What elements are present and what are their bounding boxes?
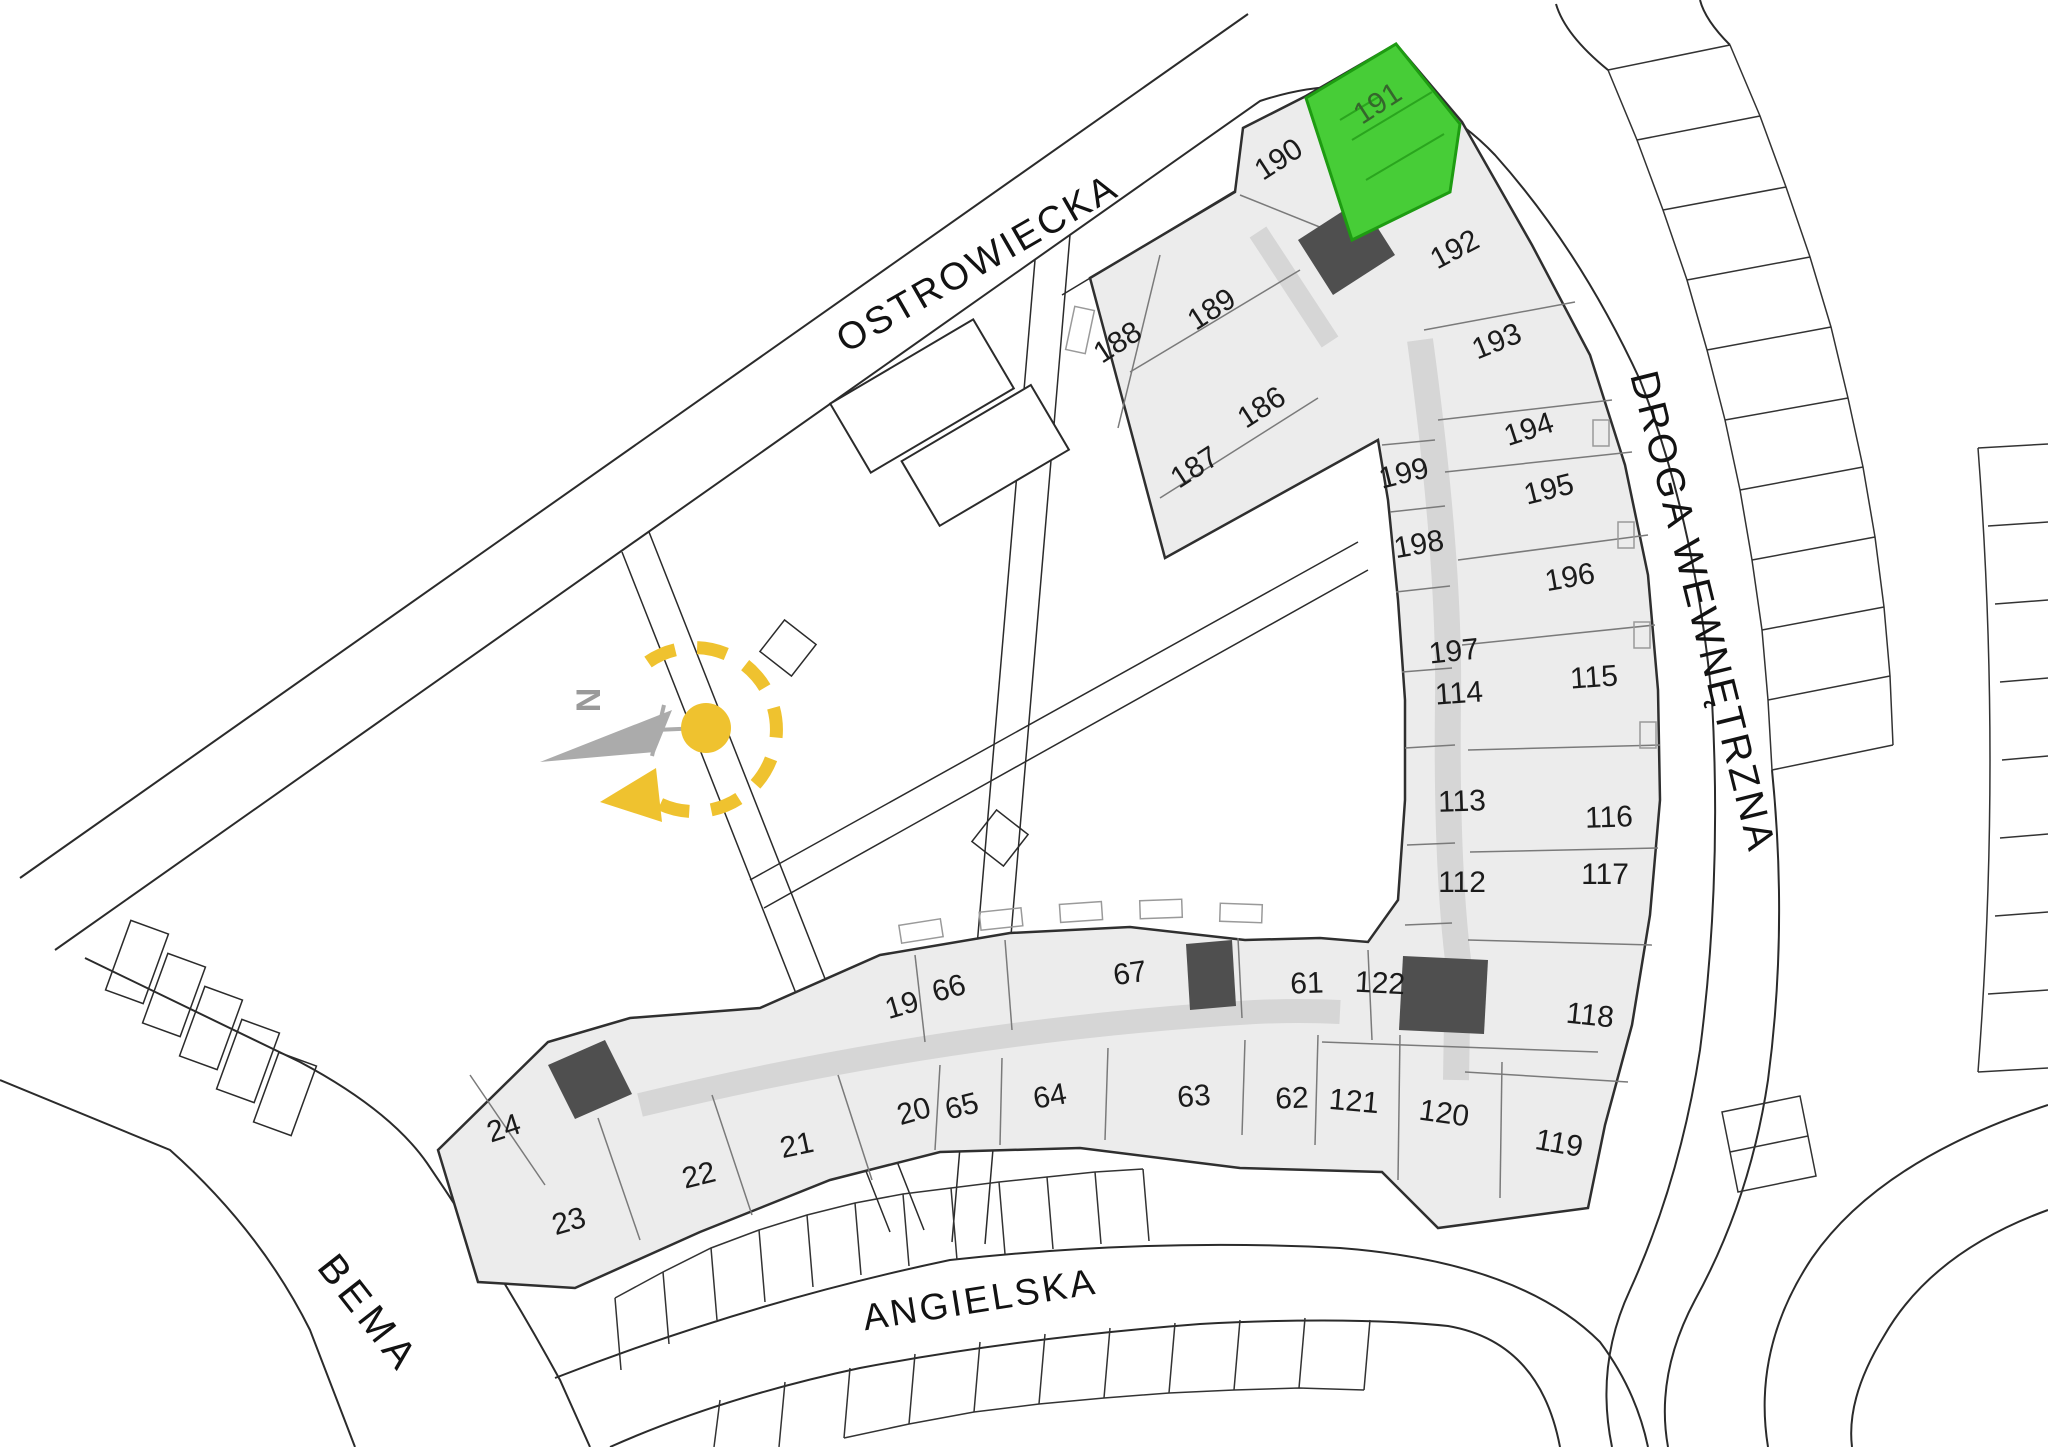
unit-label-116[interactable]: 116	[1585, 800, 1634, 836]
road-droga-cap2	[1700, 0, 1730, 45]
road-droga-outer-lower	[1665, 770, 1779, 1447]
unit-label-61[interactable]: 61	[1290, 966, 1325, 1001]
unit-label-121[interactable]: 121	[1328, 1083, 1381, 1121]
unit-label-120[interactable]: 120	[1417, 1094, 1471, 1135]
unit-label-197[interactable]: 197	[1427, 632, 1480, 671]
road-bema-sw	[0, 1080, 355, 1447]
north-label: N	[570, 688, 608, 713]
compass-dot	[681, 703, 731, 753]
unit-label-112[interactable]: 112	[1438, 866, 1486, 900]
unit-label-114[interactable]: 114	[1434, 675, 1484, 712]
unit-label-67[interactable]: 67	[1111, 955, 1149, 993]
compass-arrowhead-icon	[600, 768, 662, 822]
parking-angielska-south	[714, 1318, 1370, 1447]
unit-label-21[interactable]: 21	[777, 1126, 817, 1166]
road-angielska-lower	[610, 1320, 1560, 1447]
road-angielska-upper	[555, 1245, 1648, 1447]
unit-label-113[interactable]: 113	[1438, 784, 1487, 820]
unit-label-63[interactable]: 63	[1176, 1079, 1212, 1116]
compass: N	[540, 648, 776, 822]
road-bottom-right-outer	[1765, 1105, 2048, 1447]
site-plan: N OSTROWIECKADROGA WEWNĘTRZNAANGIELSKABE…	[0, 0, 2048, 1447]
bema-houses	[106, 920, 317, 1135]
unit-label-64[interactable]: 64	[1031, 1077, 1070, 1116]
unit-label-122[interactable]: 122	[1354, 966, 1406, 1003]
parking-right-edge	[1978, 444, 2048, 1072]
parking-pair-bottom-right	[1722, 1096, 1816, 1192]
road-droga-cap1	[1556, 4, 1608, 70]
unit-label-115[interactable]: 115	[1569, 659, 1619, 696]
road-bottom-right-inner	[1851, 1210, 2048, 1447]
unit-label-117[interactable]: 117	[1581, 858, 1629, 892]
unit-label-118[interactable]: 118	[1564, 997, 1615, 1036]
unit-label-62[interactable]: 62	[1275, 1081, 1310, 1116]
path-square-1	[760, 620, 816, 676]
